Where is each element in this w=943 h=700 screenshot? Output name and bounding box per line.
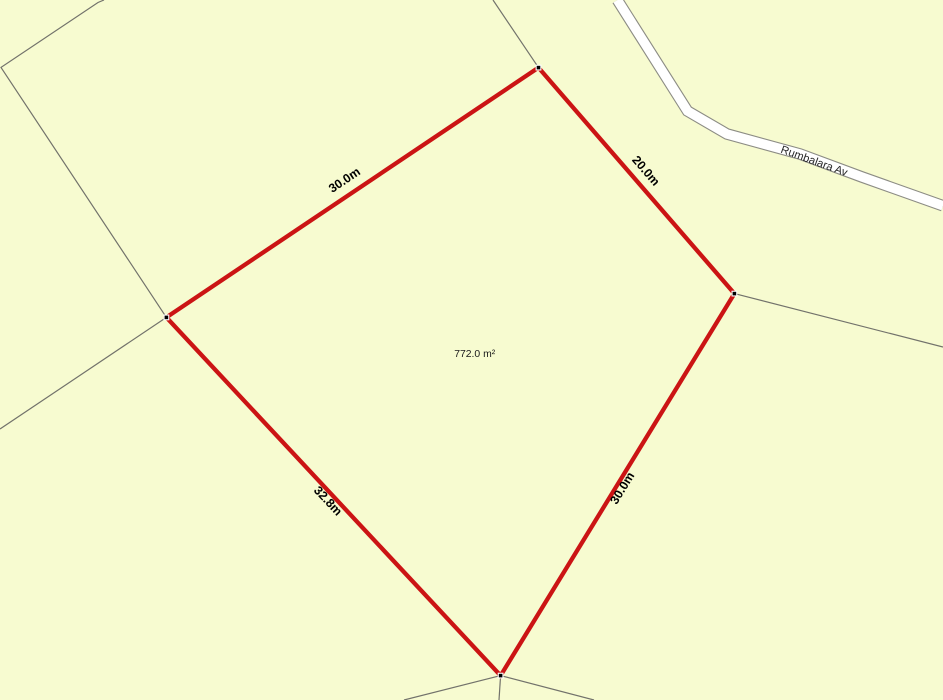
svg-text:772.0 m²: 772.0 m² — [454, 349, 496, 360]
